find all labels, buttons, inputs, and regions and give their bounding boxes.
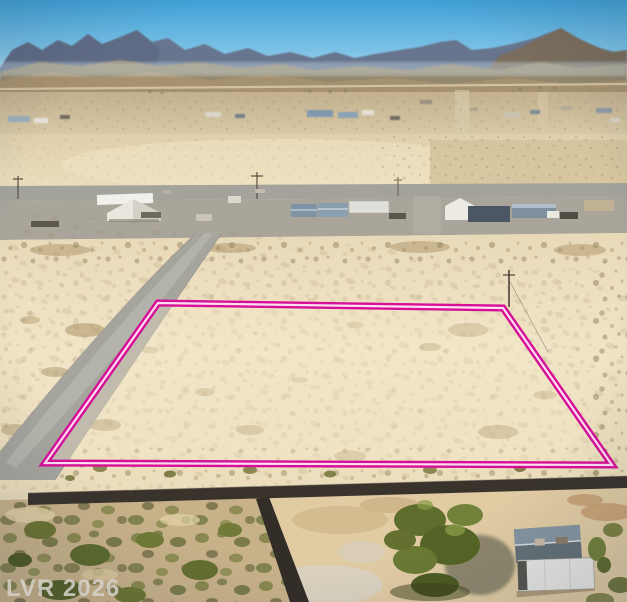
- watermark: LVR 2026: [6, 575, 120, 602]
- aerial-photo: LVR 2026: [0, 0, 627, 602]
- screenshot-root: LVR 2026: [0, 0, 627, 602]
- vignette: [0, 0, 627, 602]
